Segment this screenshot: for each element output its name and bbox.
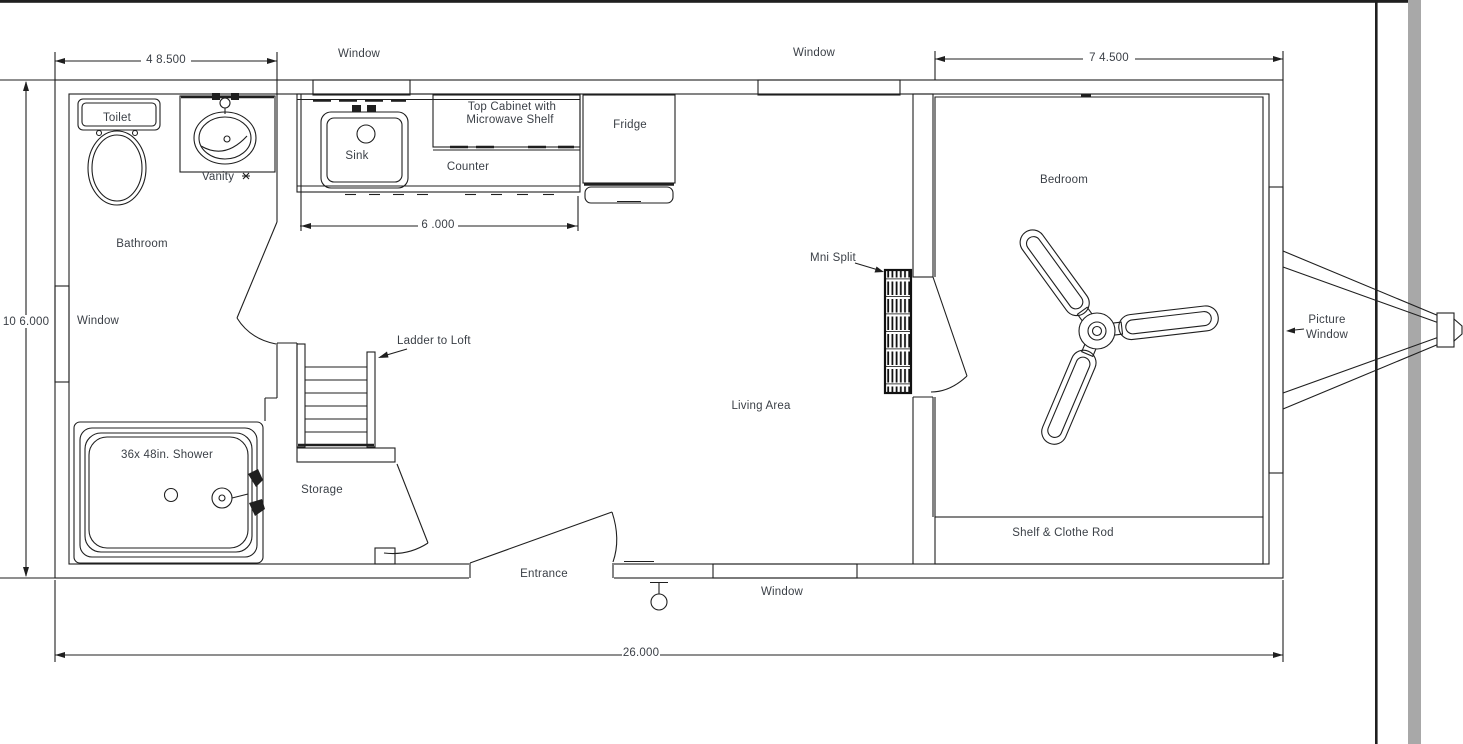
window-label-top-left: Window <box>338 48 381 60</box>
floor-plan: 4 8.500 7 4.500 10 6.000 26.000 6 .000 W… <box>0 0 1463 744</box>
toilet-label: Toilet <box>103 112 132 124</box>
top-cabinet-label-line2: Microwave Shelf <box>466 114 554 126</box>
window-label-bottom: Window <box>761 586 804 598</box>
window-label-top-right: Window <box>793 47 836 59</box>
dim-bathroom-width-label: 4 8.500 <box>146 54 186 66</box>
mini-split-unit <box>885 270 911 393</box>
picture-window-label-line2: Window <box>1306 329 1349 341</box>
sink-label: Sink <box>345 150 368 162</box>
window-label-left: Window <box>77 315 120 327</box>
living-area-label: Living Area <box>731 400 791 412</box>
ladder-label: Ladder to Loft <box>397 335 471 347</box>
dim-house-length-label: 26.000 <box>623 647 659 659</box>
shower-label: 36x 48in. Shower <box>121 449 213 461</box>
top-cabinet-label-line1: Top Cabinet with <box>468 101 556 113</box>
storage-label: Storage <box>301 484 343 496</box>
dim-house-width-label: 10 6.000 <box>3 316 49 328</box>
dim-bedroom-width-label: 7 4.500 <box>1089 52 1129 64</box>
mini-split-label: Mni Split <box>810 252 857 264</box>
picture-window-label-line1: Picture <box>1308 314 1345 326</box>
shelf-clothe-rod-label: Shelf & Clothe Rod <box>1012 527 1113 539</box>
sheet-top-border <box>0 0 1421 3</box>
sheet-vertical-rule <box>1375 0 1378 744</box>
bedroom-label: Bedroom <box>1040 174 1088 186</box>
bathroom-label: Bathroom <box>116 238 167 250</box>
vanity-label: Vanity <box>202 171 234 183</box>
entrance-label: Entrance <box>520 568 568 580</box>
counter-label: Counter <box>447 161 489 173</box>
dim-kitchen-run-label: 6 .000 <box>421 219 454 231</box>
sheet-gray-bar <box>1408 0 1421 744</box>
fridge-label: Fridge <box>613 119 647 131</box>
